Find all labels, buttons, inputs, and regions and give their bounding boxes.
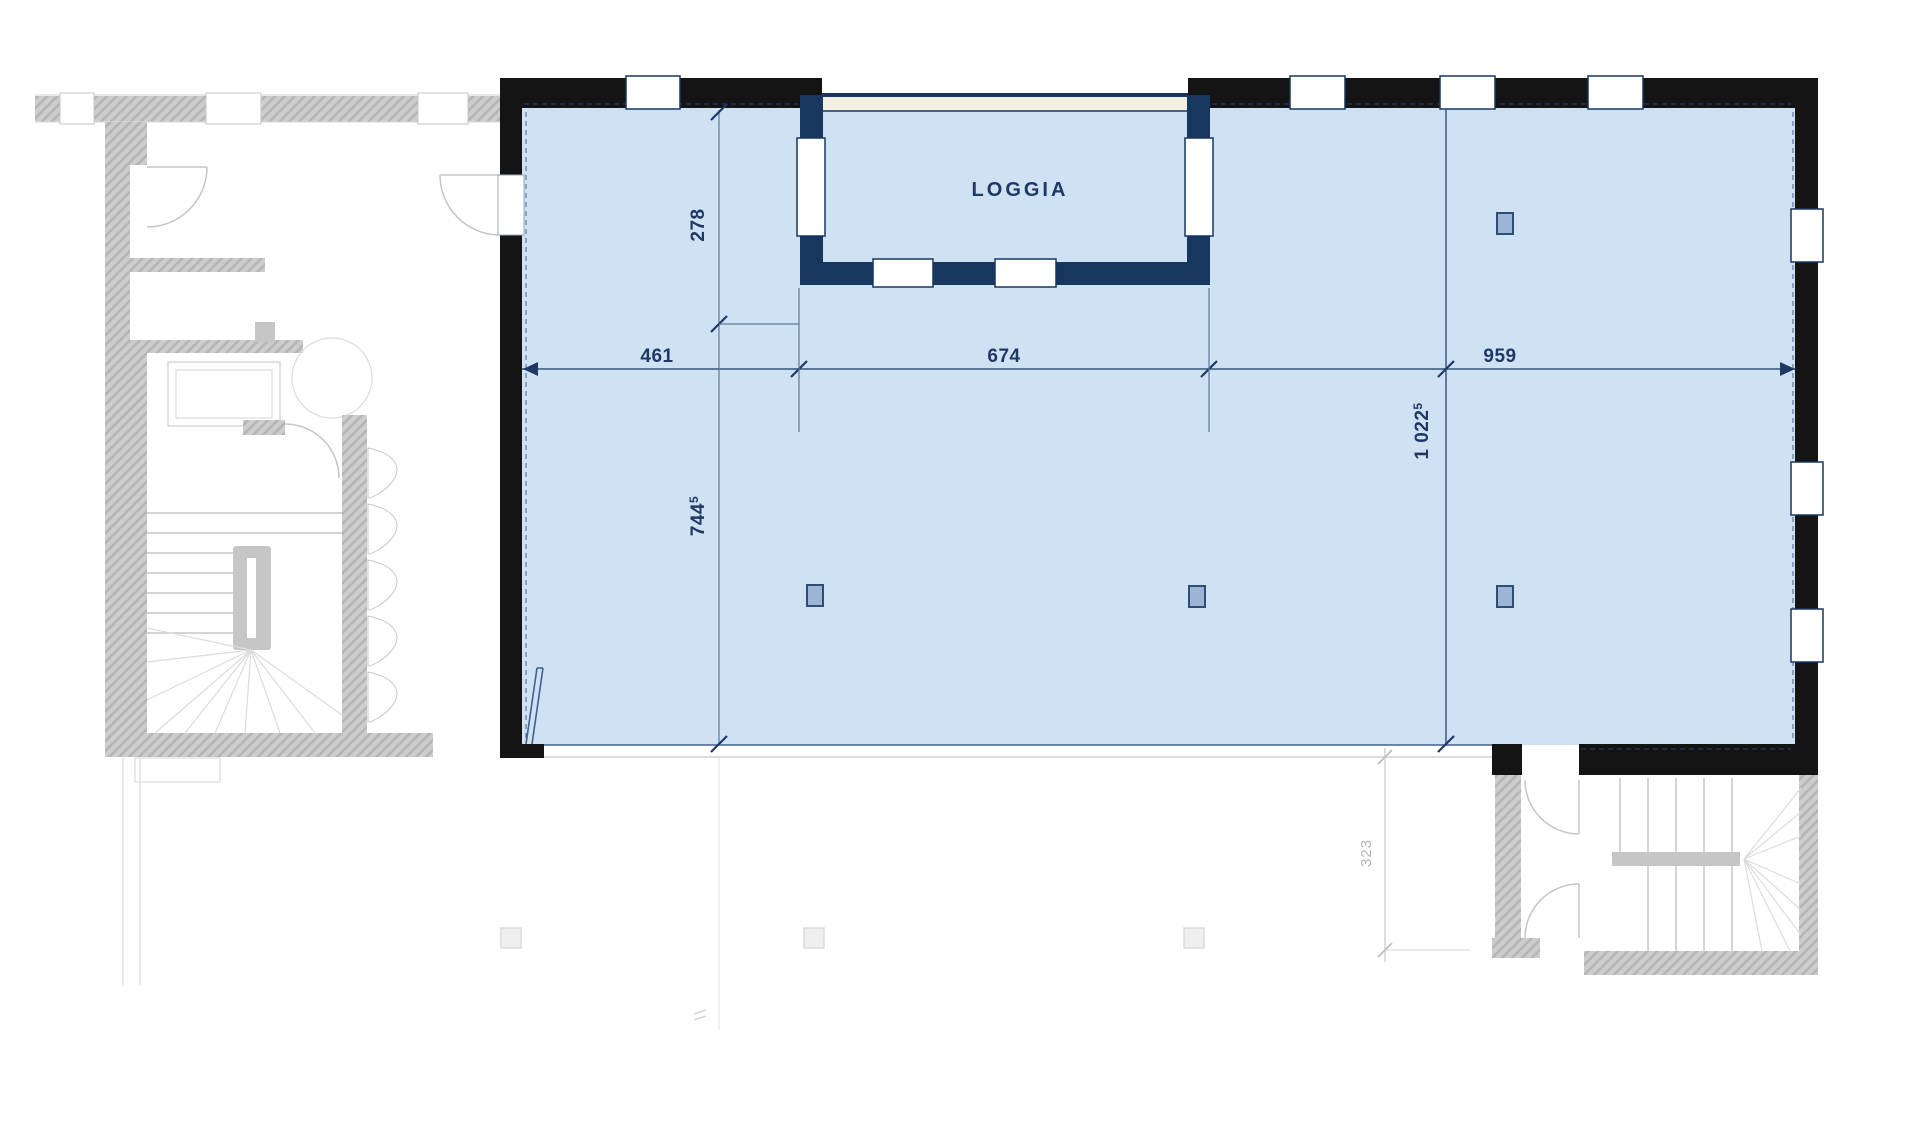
- dim-label-278: 278: [688, 208, 709, 241]
- floor-plan-page: 323: [0, 0, 1920, 1131]
- column-marker: [807, 585, 823, 606]
- right-wall: [1795, 78, 1818, 775]
- dim-label-461: 461: [640, 346, 673, 367]
- door-swing-icon: [1525, 780, 1579, 834]
- window-opening: [1290, 76, 1345, 109]
- closet-leaves: [368, 448, 397, 722]
- stair-winders: [1744, 788, 1801, 951]
- column-marker: [1189, 586, 1205, 607]
- ghost-stairwell-bottom-right: 323: [1358, 748, 1818, 975]
- floor-plan: 323: [0, 0, 1920, 1131]
- dim-label-959: 959: [1483, 346, 1516, 367]
- loggia-open-edge: [822, 97, 1188, 110]
- round-fixture-icon: [292, 338, 372, 418]
- door-swing-icon: [147, 167, 207, 227]
- window-opening: [418, 93, 468, 124]
- window-opening: [1791, 462, 1823, 515]
- stair-handrail: [1612, 852, 1740, 866]
- dim-label-1022-5: 1 0225: [1411, 402, 1433, 459]
- loggia-label: LOGGIA: [972, 179, 1069, 201]
- dim-label-323: 323: [1358, 839, 1375, 867]
- door-swing-icon: [440, 175, 500, 235]
- ghost-column: [1184, 928, 1204, 948]
- shaft: [168, 362, 280, 426]
- window-opening: [206, 93, 261, 124]
- dim-label-674: 674: [987, 346, 1020, 367]
- wall-pier: [1492, 744, 1522, 775]
- ghost-dimension-323: 323: [1358, 748, 1470, 962]
- window-opening: [1791, 609, 1823, 662]
- window-opening: [1185, 138, 1213, 236]
- window-opening: [1791, 209, 1823, 262]
- door-opening: [1523, 746, 1578, 774]
- column-marker: [1497, 586, 1513, 607]
- window-opening: [60, 93, 94, 124]
- window-opening: [797, 138, 825, 236]
- column-marker: [1497, 213, 1513, 234]
- window-opening: [1588, 76, 1643, 109]
- window-opening: [995, 259, 1056, 287]
- highlighted-unit: [522, 105, 1795, 745]
- window-opening: [626, 76, 680, 109]
- door-swing-icon: [285, 424, 339, 478]
- door-opening: [498, 175, 524, 235]
- ghost-column: [501, 928, 521, 948]
- window-opening: [1440, 76, 1495, 109]
- ghost-column: [804, 928, 824, 948]
- door-swing-icon: [1525, 884, 1579, 938]
- window-opening: [873, 259, 933, 287]
